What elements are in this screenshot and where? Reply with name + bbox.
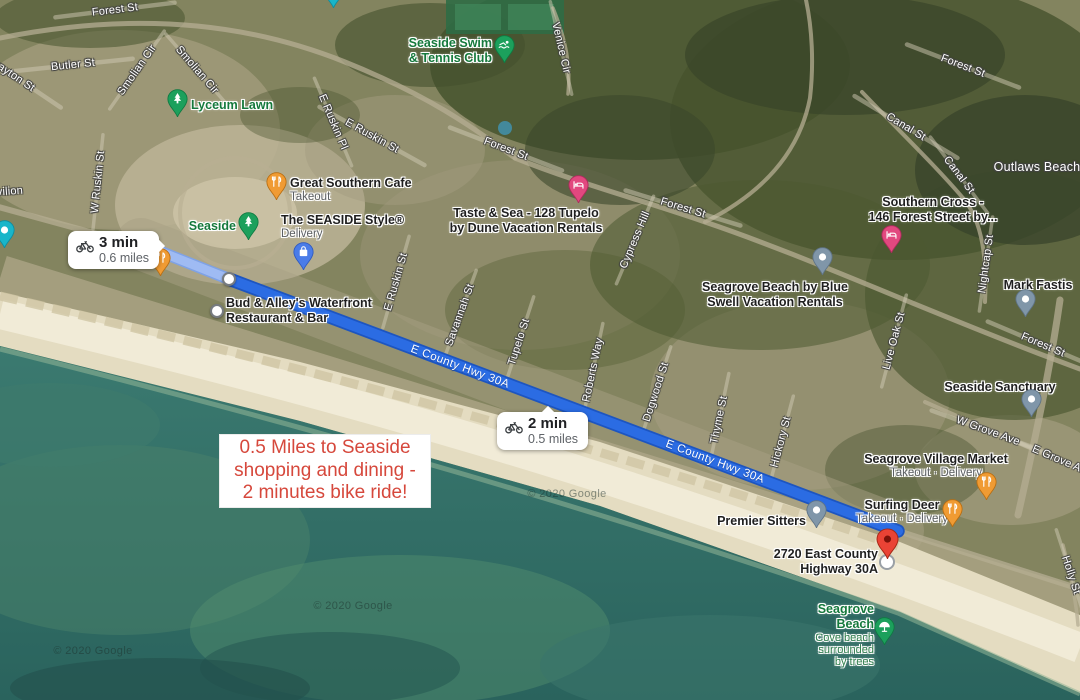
route-distance: 0.5 miles [528, 432, 578, 446]
annotation-line: 0.5 Miles to Seaside [224, 437, 426, 460]
route-time: 3 min [99, 234, 149, 251]
pond [498, 121, 512, 135]
google-watermark: © 2020 Google [53, 645, 132, 657]
route-distance: 0.6 miles [99, 251, 149, 265]
bicycle-icon [76, 239, 94, 258]
bicycle-icon [505, 420, 523, 439]
google-watermark: © 2020 Google [527, 488, 606, 500]
route-time: 2 min [528, 415, 578, 432]
annotation-line: 2 minutes bike ride! [224, 482, 426, 505]
annotation-note: 0.5 Miles to Seaside shopping and dining… [219, 434, 431, 508]
route-time-badge-start[interactable]: 3 min 0.6 miles [68, 231, 159, 269]
annotation-line: shopping and dining - [224, 460, 426, 483]
google-watermark: © 2020 Google [313, 600, 392, 612]
route-time-badge-mid[interactable]: 2 min 0.5 miles [497, 412, 588, 450]
map-canvas[interactable]: Forest StButler StGrayton StSmolian CirS… [0, 0, 1080, 700]
satellite-imagery [0, 0, 1080, 700]
